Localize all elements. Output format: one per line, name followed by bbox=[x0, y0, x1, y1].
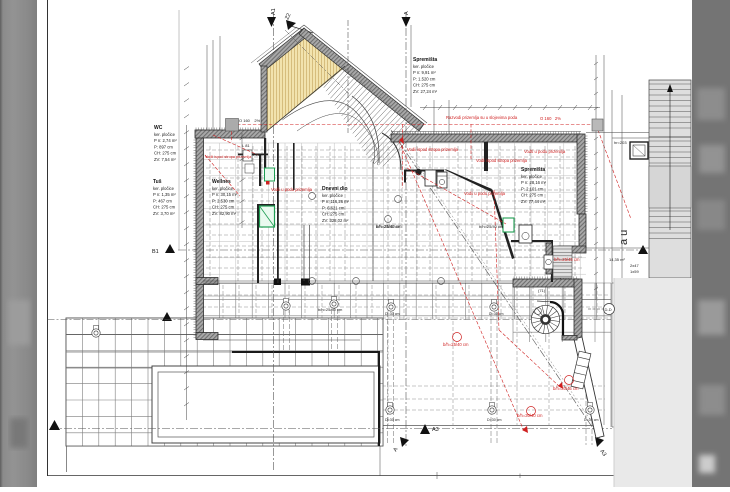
svg-text:B1: B1 bbox=[152, 249, 159, 255]
svg-text:ker. pločice: ker. pločice bbox=[413, 64, 435, 69]
svg-text:ZV: 3,70 m²: ZV: 3,70 m² bbox=[153, 211, 175, 216]
svg-text:P n: 116,26 m²: P n: 116,26 m² bbox=[322, 199, 350, 204]
svg-text:(71): (71) bbox=[538, 288, 546, 293]
svg-text:Tuš: Tuš bbox=[153, 179, 162, 185]
svg-text:P n: 9,91 m²: P n: 9,91 m² bbox=[413, 70, 436, 75]
svg-text:CH: 275 cm: CH: 275 cm bbox=[322, 212, 345, 217]
svg-text:hr=203: hr=203 bbox=[614, 140, 627, 145]
svg-text:CH: 275 cm: CH: 275 cm bbox=[154, 151, 177, 156]
svg-text:P: 6.621 cm: P: 6.621 cm bbox=[322, 205, 345, 210]
svg-text:Vodii ispod stropa prizemlja: Vodii ispod stropa prizemlja bbox=[476, 158, 528, 163]
svg-text:Spremišta: Spremišta bbox=[413, 57, 437, 63]
svg-text:ker. pločice: ker. pločice bbox=[521, 174, 543, 179]
svg-text:D=30 cm: D=30 cm bbox=[487, 418, 501, 422]
svg-text:CH: 275 cm: CH: 275 cm bbox=[212, 205, 235, 210]
svg-text:D=30 cm: D=30 cm bbox=[584, 418, 598, 422]
svg-text:ZV: 82,90 m²: ZV: 82,90 m² bbox=[212, 211, 237, 216]
svg-text:2x47: 2x47 bbox=[630, 263, 639, 268]
svg-text:L 81: L 81 bbox=[242, 143, 250, 148]
svg-text:ZV: 27,24 m²: ZV: 27,24 m² bbox=[413, 89, 438, 94]
svg-text:CH: 275 cm: CH: 275 cm bbox=[413, 83, 436, 88]
svg-text:Vodii u podu prizemlja: Vodii u podu prizemlja bbox=[271, 187, 313, 192]
svg-text:Dnevni dio: Dnevni dio bbox=[322, 186, 348, 192]
svg-text:P: 2.101 cm: P: 2.101 cm bbox=[521, 186, 544, 191]
svg-text:P: 467 cm: P: 467 cm bbox=[153, 198, 172, 203]
svg-text:D=30 cm: D=30 cm bbox=[385, 312, 399, 316]
svg-text:A3: A3 bbox=[432, 427, 439, 433]
svg-text:P: 2.530 cm: P: 2.530 cm bbox=[212, 198, 235, 203]
svg-text:P n: 1,35 m²: P n: 1,35 m² bbox=[153, 192, 176, 197]
svg-text:b/h=25/40 cm: b/h=25/40 cm bbox=[318, 307, 343, 312]
svg-text:Vodii ispod stropa prizemlja: Vodii ispod stropa prizemlja bbox=[205, 155, 252, 159]
svg-text:1x59: 1x59 bbox=[630, 269, 639, 274]
svg-text:CH: 275 cm: CH: 275 cm bbox=[521, 193, 544, 198]
svg-text:Vodti u podu prizemlja: Vodti u podu prizemlja bbox=[524, 149, 566, 154]
svg-text:O 160 2%: O 160 2% bbox=[239, 118, 261, 123]
svg-text:P: 1.520 cm: P: 1.520 cm bbox=[413, 76, 436, 81]
svg-text:b/h=25/45 cm: b/h=25/45 cm bbox=[554, 257, 580, 262]
svg-text:Vodii ispod stropa prizemlja: Vodii ispod stropa prizemlja bbox=[407, 147, 459, 152]
svg-text:D=30 cm: D=30 cm bbox=[489, 312, 503, 316]
svg-text:ZV: 7,54 m²: ZV: 7,54 m² bbox=[154, 157, 176, 162]
svg-text:CH: 275 cm: CH: 275 cm bbox=[153, 205, 176, 210]
svg-text:ker. pločice: ker. pločice bbox=[212, 186, 234, 191]
svg-text:P n: 30,15 m²: P n: 30,15 m² bbox=[212, 192, 238, 197]
svg-text:P n: 2,74 m²: P n: 2,74 m² bbox=[154, 138, 177, 143]
svg-text:P n: 28,16 m²: P n: 28,16 m² bbox=[521, 180, 547, 185]
svg-text:D-D: D-D bbox=[605, 307, 612, 312]
svg-text:Wellnes: Wellnes bbox=[212, 179, 231, 185]
svg-text:Razvodi prizemlja su u slojevi: Razvodi prizemlja su u slojevima poda bbox=[446, 115, 518, 120]
svg-text:Spremišta: Spremišta bbox=[521, 167, 545, 173]
svg-text:b/h=25/40 cm: b/h=25/40 cm bbox=[479, 224, 504, 229]
svg-text:b/h=30/45 cm: b/h=30/45 cm bbox=[553, 386, 579, 391]
svg-text:b/h=25/40 cm: b/h=25/40 cm bbox=[376, 224, 401, 229]
svg-text:b/h=25/40 cm: b/h=25/40 cm bbox=[443, 342, 469, 347]
svg-text:ker. pločice: ker. pločice bbox=[153, 186, 175, 191]
svg-text:ker. pločice: ker. pločice bbox=[322, 193, 344, 198]
svg-text:T 90: T 90 bbox=[252, 152, 261, 157]
svg-text:ZV: 328,02 m²: ZV: 328,02 m² bbox=[322, 218, 349, 223]
svg-text:ZV: 77,44 m²: ZV: 77,44 m² bbox=[521, 199, 546, 204]
svg-text:14,35 m²: 14,35 m² bbox=[609, 257, 625, 262]
svg-text:A: A bbox=[404, 11, 410, 15]
svg-text:P: 897 cm: P: 897 cm bbox=[154, 144, 173, 149]
svg-text:ker. pločice: ker. pločice bbox=[154, 132, 176, 137]
svg-text:WC: WC bbox=[154, 125, 163, 131]
svg-text:A1: A1 bbox=[271, 8, 277, 15]
svg-text:a u: a u bbox=[618, 230, 630, 245]
svg-text:O 160 2%: O 160 2% bbox=[540, 116, 561, 121]
svg-text:Vodii u podu prizemlja: Vodii u podu prizemlja bbox=[464, 191, 506, 196]
svg-text:D=30 cm: D=30 cm bbox=[385, 418, 399, 422]
